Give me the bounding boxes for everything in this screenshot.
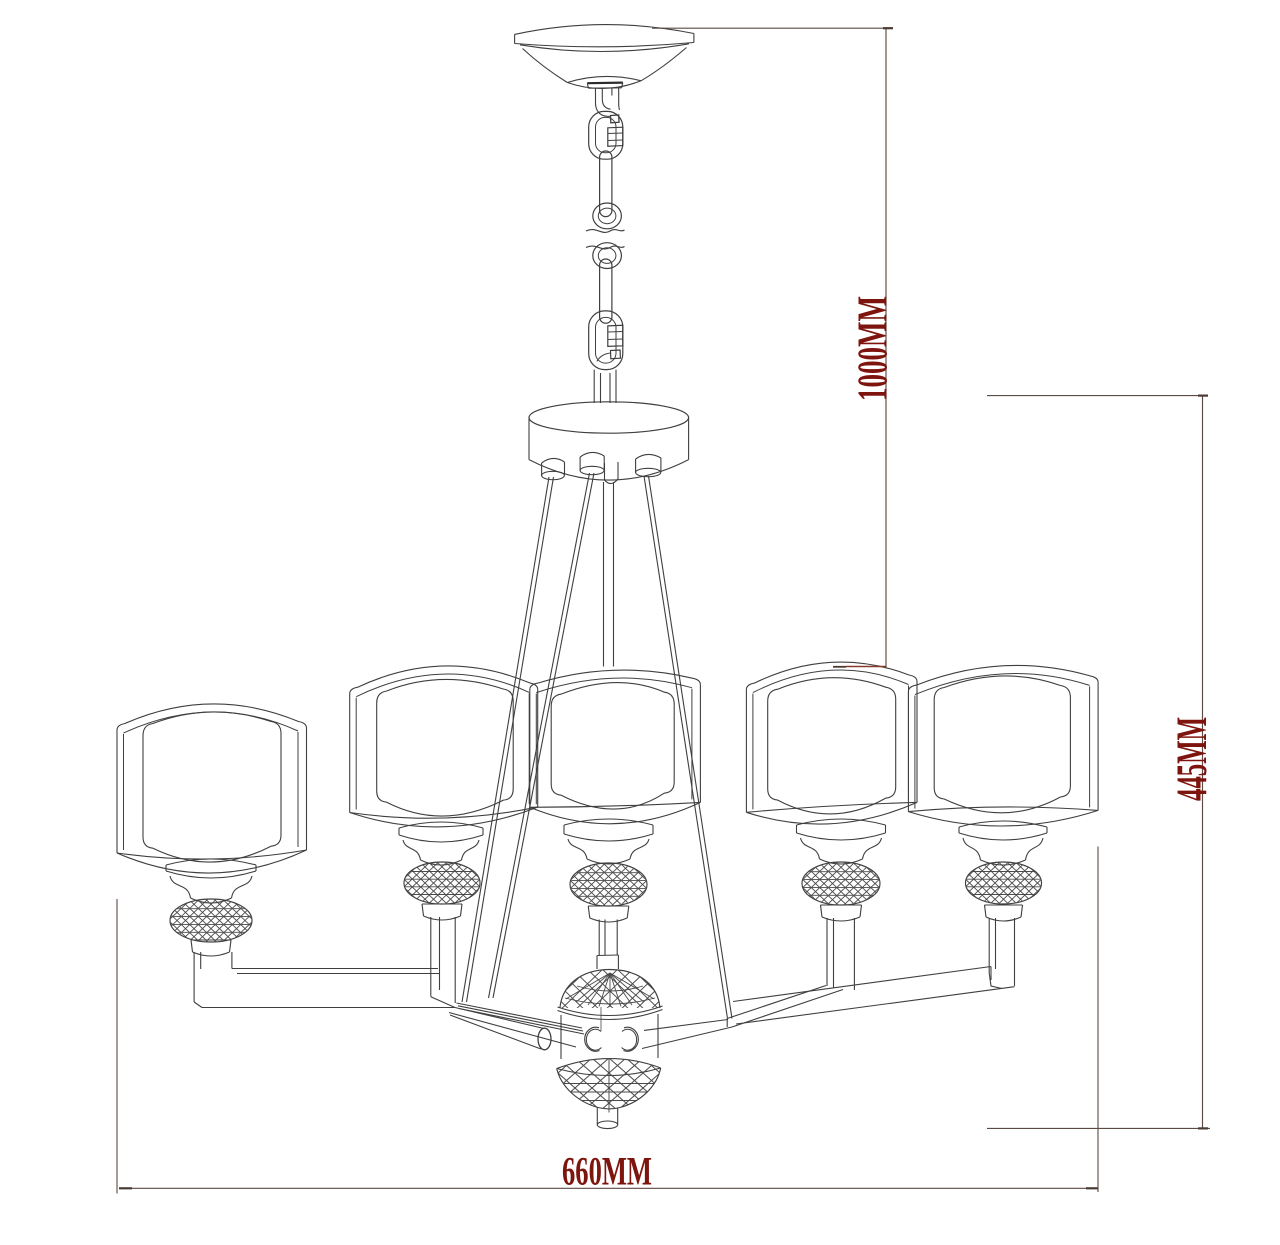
svg-text:445MM: 445MM (1169, 717, 1216, 801)
svg-text:1000MM: 1000MM (851, 296, 897, 401)
svg-text:660MM: 660MM (562, 1149, 652, 1194)
